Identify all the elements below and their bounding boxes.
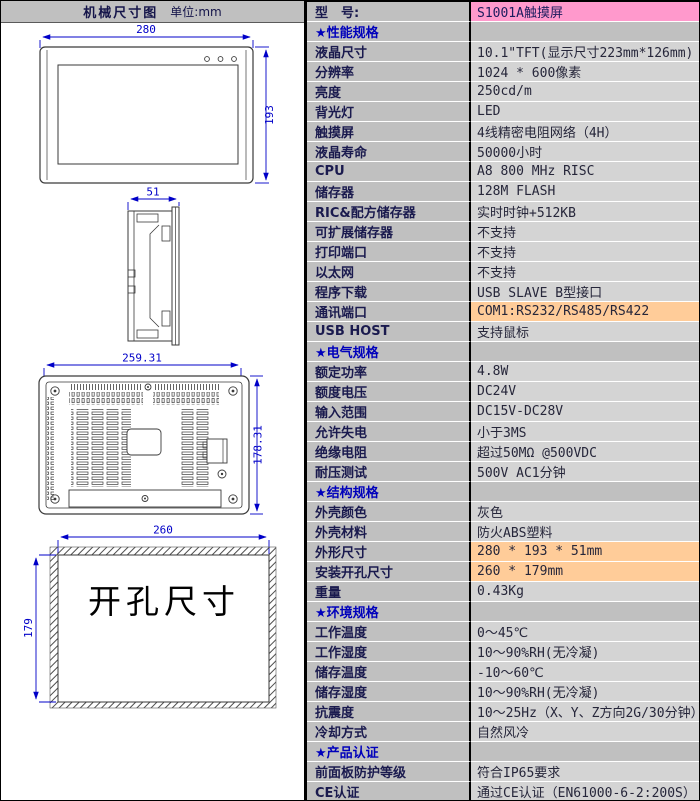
section-title: ★结构规格 <box>307 482 471 502</box>
spec-label: 储存器 <box>307 182 471 202</box>
spec-row: 打印端口不支持 <box>307 242 700 262</box>
spec-row: 外壳颜色灰色 <box>307 502 700 522</box>
spec-value: 自然风冷 <box>471 722 700 742</box>
spec-value <box>471 342 700 362</box>
spec-label: 工作温度 <box>307 622 471 642</box>
spec-row: 通讯端口COM1:RS232/RS485/RS422 <box>307 302 700 322</box>
mechanical-drawings: 280 193 51 <box>1 22 304 801</box>
spec-label: 程序下载 <box>307 282 471 302</box>
datasheet-page: 机械尺寸图 单位:mm <box>0 0 700 801</box>
spec-label: 分辨率 <box>307 62 471 82</box>
spec-value: 10～90%RH(无冷凝) <box>471 642 700 662</box>
spec-label: 冷却方式 <box>307 722 471 742</box>
spec-value: 4.8W <box>471 362 700 382</box>
rear-connector <box>203 439 227 463</box>
spec-value: LED <box>471 102 700 122</box>
spec-value: COM1:RS232/RS485/RS422 <box>471 302 700 322</box>
spec-label: CPU <box>307 162 471 182</box>
front-width-dimension: 280 <box>136 23 156 36</box>
spec-row: 外形尺寸280 * 193 * 51mm <box>307 542 700 562</box>
spec-label: 抗震度 <box>307 702 471 722</box>
spec-label: 安装开孔尺寸 <box>307 562 471 582</box>
section-row: ★电气规格 <box>307 342 700 362</box>
section-title: ★性能规格 <box>307 22 471 42</box>
spec-label: 前面板防护等级 <box>307 762 471 782</box>
spec-row: 储存器128M FLASH <box>307 182 700 202</box>
spec-row: 液晶尺寸10.1"TFT(显示尺寸223mm*126mm) <box>307 42 700 62</box>
spec-label: 允许失电 <box>307 422 471 442</box>
spec-row: 外壳材料防火ABS塑料 <box>307 522 700 542</box>
cutout-caption: 开孔尺寸 <box>88 582 240 621</box>
spec-label: USB HOST <box>307 322 471 342</box>
spec-value: 通过CE认证（EN61000-6-2:200S） <box>471 782 700 801</box>
spec-label: 额定功率 <box>307 362 471 382</box>
section-row: ★环境规格 <box>307 602 700 622</box>
spec-row: 以太网不支持 <box>307 262 700 282</box>
section-row: ★结构规格 <box>307 482 700 502</box>
spec-value: 支持鼠标 <box>471 322 700 342</box>
spec-row: 抗震度10～25Hz（X、Y、Z方向2G/30分钟） <box>307 702 700 722</box>
spec-value: 128M FLASH <box>471 182 700 202</box>
front-view-drawing: 280 193 <box>40 23 276 183</box>
spec-value: 不支持 <box>471 262 700 282</box>
cutout-width-dimension: 260 <box>153 524 173 537</box>
spec-label: 背光灯 <box>307 102 471 122</box>
spec-value: 250cd/m <box>471 82 700 102</box>
spec-label: 可扩展储存器 <box>307 222 471 242</box>
spec-value: -10～60℃ <box>471 662 700 682</box>
spec-row: 工作湿度10～90%RH(无冷凝) <box>307 642 700 662</box>
spec-row: 额度电压DC24V <box>307 382 700 402</box>
rear-height-dimension: 178.31 <box>252 425 265 465</box>
spec-row: 分辨率1024 * 600像素 <box>307 62 700 82</box>
spec-value: 260 * 179mm <box>471 562 700 582</box>
cutout-view-drawing: 260 开孔尺寸 179 <box>22 524 276 709</box>
spec-value <box>471 742 700 762</box>
spec-label: 型 号: <box>307 2 471 22</box>
side-view-drawing: 51 <box>128 186 179 346</box>
section-row: ★性能规格 <box>307 22 700 42</box>
spec-value: 灰色 <box>471 502 700 522</box>
spec-row: RIC&配方储存器实时时钟+512KB <box>307 202 700 222</box>
spec-label: 外壳材料 <box>307 522 471 542</box>
section-title: ★产品认证 <box>307 742 471 762</box>
spec-row: 程序下载USB SLAVE B型接口 <box>307 282 700 302</box>
spec-value: 符合IP65要求 <box>471 762 700 782</box>
spec-row: 允许失电小于3MS <box>307 422 700 442</box>
spec-row: 触摸屏4线精密电阻网络（4H） <box>307 122 700 142</box>
spec-value: A8 800 MHz RISC <box>471 162 700 182</box>
spec-row: 耐压测试500V AC1分钟 <box>307 462 700 482</box>
spec-label: 触摸屏 <box>307 122 471 142</box>
spec-row: 安装开孔尺寸260 * 179mm <box>307 562 700 582</box>
spec-row: 工作温度0～45℃ <box>307 622 700 642</box>
spec-value: 超过50MΩ @500VDC <box>471 442 700 462</box>
spec-label: RIC&配方储存器 <box>307 202 471 222</box>
spec-row: 额定功率4.8W <box>307 362 700 382</box>
spec-row: CPUA8 800 MHz RISC <box>307 162 700 182</box>
spec-value: 实时时钟+512KB <box>471 202 700 222</box>
spec-row: 型 号:S1001A触摸屏 <box>307 2 700 22</box>
spec-label: 外形尺寸 <box>307 542 471 562</box>
drawing-panel-header: 机械尺寸图 单位:mm <box>1 1 304 23</box>
spec-value: 0.43Kg <box>471 582 700 602</box>
spec-row: 储存温度-10～60℃ <box>307 662 700 682</box>
spec-value: 0～45℃ <box>471 622 700 642</box>
rear-center-plate <box>127 429 161 455</box>
spec-value: 10～25Hz（X、Y、Z方向2G/30分钟） <box>471 702 700 722</box>
spec-label: 输入范围 <box>307 402 471 422</box>
spec-label: 液晶寿命 <box>307 142 471 162</box>
section-title: ★电气规格 <box>307 342 471 362</box>
spec-label: 液晶尺寸 <box>307 42 471 62</box>
front-height-dimension: 193 <box>263 105 276 125</box>
spec-row: 亮度250cd/m <box>307 82 700 102</box>
spec-label: 亮度 <box>307 82 471 102</box>
mechanical-drawing-panel: 机械尺寸图 单位:mm <box>1 1 304 800</box>
spec-value <box>471 602 700 622</box>
spec-value: 不支持 <box>471 222 700 242</box>
spec-value: 50000小时 <box>471 142 700 162</box>
rear-view-drawing: 259.31 <box>39 352 265 515</box>
spec-label: 耐压测试 <box>307 462 471 482</box>
spec-label: CE认证 <box>307 782 471 801</box>
spec-label: 外壳颜色 <box>307 502 471 522</box>
spec-row: 冷却方式自然风冷 <box>307 722 700 742</box>
spec-label: 以太网 <box>307 262 471 282</box>
spec-row: 储存湿度10～90%RH(无冷凝) <box>307 682 700 702</box>
spec-row: USB HOST支持鼠标 <box>307 322 700 342</box>
rear-width-dimension: 259.31 <box>122 352 162 365</box>
spec-value: DC24V <box>471 382 700 402</box>
spec-value: 10～90%RH(无冷凝) <box>471 682 700 702</box>
spec-label: 额度电压 <box>307 382 471 402</box>
spec-label: 绝缘电阻 <box>307 442 471 462</box>
spec-value <box>471 482 700 502</box>
side-depth-dimension: 51 <box>146 186 159 199</box>
spec-value: 10.1"TFT(显示尺寸223mm*126mm) <box>471 42 700 62</box>
spec-label: 打印端口 <box>307 242 471 262</box>
spec-value <box>471 22 700 42</box>
spec-table-rows: 型 号:S1001A触摸屏★性能规格液晶尺寸10.1"TFT(显示尺寸223mm… <box>307 2 700 801</box>
spec-label: 重量 <box>307 582 471 602</box>
spec-value: 500V AC1分钟 <box>471 462 700 482</box>
spec-value: DC15V-DC28V <box>471 402 700 422</box>
spec-value: 防火ABS塑料 <box>471 522 700 542</box>
spec-value: 小于3MS <box>471 422 700 442</box>
spec-row: 液晶寿命50000小时 <box>307 142 700 162</box>
spec-label: 工作湿度 <box>307 642 471 662</box>
spec-label: 储存温度 <box>307 662 471 682</box>
spec-row: 输入范围DC15V-DC28V <box>307 402 700 422</box>
spec-row: 绝缘电阻超过50MΩ @500VDC <box>307 442 700 462</box>
spec-value: USB SLAVE B型接口 <box>471 282 700 302</box>
spec-value: 4线精密电阻网络（4H） <box>471 122 700 142</box>
spec-row: CE认证通过CE认证（EN61000-6-2:200S） <box>307 782 700 801</box>
section-row: ★产品认证 <box>307 742 700 762</box>
spec-row: 可扩展储存器不支持 <box>307 222 700 242</box>
spec-row: 前面板防护等级符合IP65要求 <box>307 762 700 782</box>
spec-table: 型 号:S1001A触摸屏★性能规格液晶尺寸10.1"TFT(显示尺寸223mm… <box>307 1 700 800</box>
spec-value: 280 * 193 * 51mm <box>471 542 700 562</box>
spec-row: 背光灯LED <box>307 102 700 122</box>
spec-label: 储存湿度 <box>307 682 471 702</box>
spec-label: 通讯端口 <box>307 302 471 322</box>
spec-value: 不支持 <box>471 242 700 262</box>
front-screen-area <box>58 65 238 164</box>
section-title: ★环境规格 <box>307 602 471 622</box>
drawing-panel-title: 机械尺寸图 <box>83 2 158 21</box>
spec-value: S1001A触摸屏 <box>471 2 700 22</box>
drawing-unit-label: 单位:mm <box>170 3 221 20</box>
spec-row: 重量0.43Kg <box>307 582 700 602</box>
spec-value: 1024 * 600像素 <box>471 62 700 82</box>
cutout-height-dimension: 179 <box>22 618 35 638</box>
